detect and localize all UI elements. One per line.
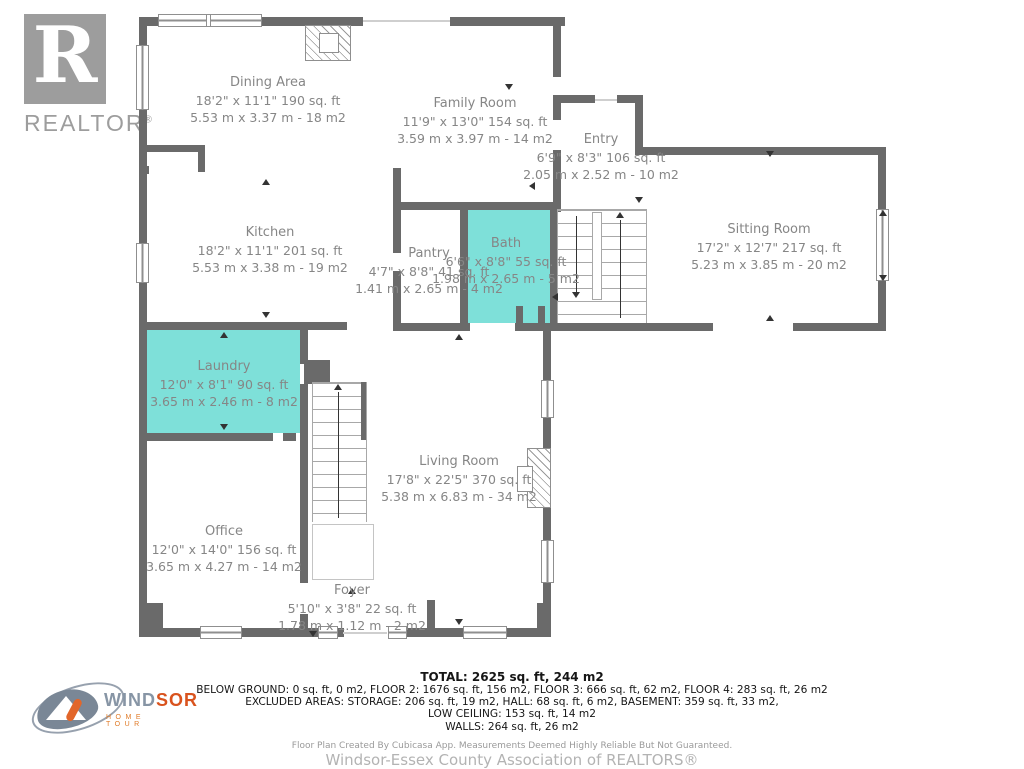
- wall: [450, 17, 565, 26]
- wall: [427, 600, 435, 628]
- room-dims-imperial: 6'6" x 8'8" 55 sq. ft: [432, 253, 580, 270]
- wall: [304, 360, 330, 384]
- wall: [139, 628, 200, 637]
- room-dims-imperial: 18'2" x 11'1" 190 sq. ft: [190, 92, 346, 109]
- dimension-arrow: [766, 315, 774, 321]
- window: [463, 626, 507, 639]
- room-name: Kitchen: [192, 224, 348, 242]
- wall: [143, 145, 205, 152]
- room-dims-metric: 5.53 m x 3.37 m - 18 m2: [190, 109, 346, 126]
- window: [136, 243, 149, 283]
- room-name: Foyer: [278, 582, 426, 600]
- window: [136, 45, 149, 110]
- room-dims-imperial: 6'9" x 8'3" 106 sq. ft: [523, 149, 679, 166]
- room-label-laundry: Laundry 12'0" x 8'1" 90 sq. ft 3.65 m x …: [150, 358, 298, 410]
- room-dims-imperial: 17'8" x 22'5" 370 sq. ft: [381, 471, 537, 488]
- wall: [393, 323, 470, 331]
- wall: [561, 95, 595, 103]
- room-label-dining-area: Dining Area 18'2" x 11'1" 190 sq. ft 5.5…: [190, 74, 346, 126]
- room-name: Family Room: [397, 95, 553, 113]
- low-ceiling-line: LOW CEILING: 153 sq. ft, 14 m2: [0, 708, 1024, 720]
- door-threshold: [595, 99, 617, 101]
- room-label-office: Office 12'0" x 14'0" 156 sq. ft 3.65 m x…: [146, 523, 302, 575]
- window: [200, 626, 242, 639]
- room-label-kitchen: Kitchen 18'2" x 11'1" 201 sq. ft 5.53 m …: [192, 224, 348, 276]
- chimney-flue: [319, 33, 339, 53]
- room-label-sitting-room: Sitting Room 17'2" x 12'7" 217 sq. ft 5.…: [691, 221, 847, 273]
- room-dims-metric: 5.38 m x 6.83 m - 34 m2: [381, 488, 537, 505]
- window: [876, 209, 889, 281]
- dimension-arrow: [879, 275, 887, 281]
- total-area-line: TOTAL: 2625 sq. ft, 244 m2: [0, 671, 1024, 684]
- foyer-staircase: [312, 382, 367, 522]
- wall: [143, 322, 347, 330]
- excluded-areas-line: EXCLUDED AREAS: STORAGE: 206 sq. ft, 19 …: [0, 696, 1024, 708]
- opening-threshold: [363, 20, 450, 22]
- room-dims-metric: 1.98 m x 2.65 m - 5 m2: [432, 270, 580, 287]
- room-dims-imperial: 17'2" x 12'7" 217 sq. ft: [691, 239, 847, 256]
- window: [541, 540, 554, 583]
- dimension-arrow: [879, 210, 887, 216]
- room-name: Entry: [523, 131, 679, 149]
- dimension-arrow: [220, 424, 228, 430]
- room-name: Sitting Room: [691, 221, 847, 239]
- room-dims-imperial: 11'9" x 13'0" 154 sq. ft: [397, 113, 553, 130]
- dimension-arrow: [505, 84, 513, 90]
- room-label-living-room: Living Room 17'8" x 22'5" 370 sq. ft 5.3…: [381, 453, 537, 505]
- room-label-foyer: Foyer 5'10" x 3'8" 22 sq. ft 1.78 m x 1.…: [278, 582, 426, 634]
- stair-direction-line: [338, 392, 339, 518]
- room-dims-metric: 3.65 m x 4.27 m - 14 m2: [146, 558, 302, 575]
- wall: [515, 323, 557, 331]
- dimension-arrow: [552, 293, 558, 301]
- stair-direction-line: [620, 220, 621, 318]
- stair-landing-outline: [312, 524, 374, 580]
- room-dims-metric: 5.23 m x 3.85 m - 20 m2: [691, 256, 847, 273]
- dimension-arrow: [455, 334, 463, 340]
- floor-plan-page: { "branding": { "realtor_r": "R", "realt…: [0, 0, 1024, 768]
- window: [158, 14, 262, 27]
- wall: [543, 331, 551, 380]
- wall: [793, 323, 886, 331]
- wall: [283, 433, 296, 441]
- wall: [557, 323, 713, 331]
- wall: [553, 95, 561, 120]
- window-mullion: [206, 15, 211, 26]
- room-dims-imperial: 12'0" x 8'1" 90 sq. ft: [150, 376, 298, 393]
- room-dims-metric: 5.53 m x 3.38 m - 19 m2: [192, 259, 348, 276]
- dimension-arrow: [262, 312, 270, 318]
- wall: [643, 147, 886, 155]
- stair-rail: [361, 382, 366, 440]
- room-name: Bath: [432, 235, 580, 253]
- wall: [300, 330, 308, 364]
- wall: [393, 168, 401, 253]
- wall: [537, 603, 551, 629]
- room-label-entry: Entry 6'9" x 8'3" 106 sq. ft 2.05 m x 2.…: [523, 131, 679, 183]
- wall: [516, 306, 523, 323]
- room-name: Dining Area: [190, 74, 346, 92]
- dimension-arrow: [635, 197, 643, 203]
- wall: [198, 145, 205, 172]
- room-dims-imperial: 5'10" x 3'8" 22 sq. ft: [278, 600, 426, 617]
- room-dims-metric: 2.05 m x 2.52 m - 10 m2: [523, 166, 679, 183]
- room-label-bath: Bath 6'6" x 8'8" 55 sq. ft 1.98 m x 2.65…: [432, 235, 580, 287]
- window: [541, 380, 554, 418]
- room-name: Laundry: [150, 358, 298, 376]
- wall: [139, 110, 147, 243]
- room-dims-imperial: 18'2" x 11'1" 201 sq. ft: [192, 242, 348, 259]
- room-dims-metric: 3.65 m x 2.46 m - 8 m2: [150, 393, 298, 410]
- wall: [507, 628, 551, 637]
- wall: [143, 166, 149, 174]
- stair-up-arrow: [616, 212, 624, 218]
- wall: [139, 17, 147, 45]
- dimension-arrow: [220, 332, 228, 338]
- stair-down-arrow: [572, 292, 580, 298]
- dimension-arrow: [455, 619, 463, 625]
- wall: [400, 202, 553, 210]
- cubicasa-disclaimer: Floor Plan Created By Cubicasa App. Meas…: [0, 741, 1024, 751]
- room-name: Office: [146, 523, 302, 541]
- room-name: Living Room: [381, 453, 537, 471]
- stair-center-rail: [592, 212, 602, 300]
- wall: [139, 603, 163, 629]
- association-name: Windsor-Essex County Association of REAL…: [0, 751, 1024, 769]
- wall: [553, 17, 561, 77]
- wall: [538, 306, 545, 323]
- area-summary: TOTAL: 2625 sq. ft, 244 m2 BELOW GROUND:…: [0, 671, 1024, 733]
- wall: [143, 433, 273, 441]
- floors-area-line: BELOW GROUND: 0 sq. ft, 0 m2, FLOOR 2: 1…: [0, 684, 1024, 696]
- dimension-arrow: [766, 151, 774, 157]
- wall: [139, 283, 147, 628]
- dimension-arrow: [262, 179, 270, 185]
- room-dims-imperial: 12'0" x 14'0" 156 sq. ft: [146, 541, 302, 558]
- walls-area-line: WALLS: 264 sq. ft, 26 m2: [0, 721, 1024, 733]
- stair-up-arrow: [334, 384, 342, 390]
- room-dims-metric: 1.78 m x 1.12 m - 2 m2: [278, 617, 426, 634]
- wall: [878, 147, 886, 209]
